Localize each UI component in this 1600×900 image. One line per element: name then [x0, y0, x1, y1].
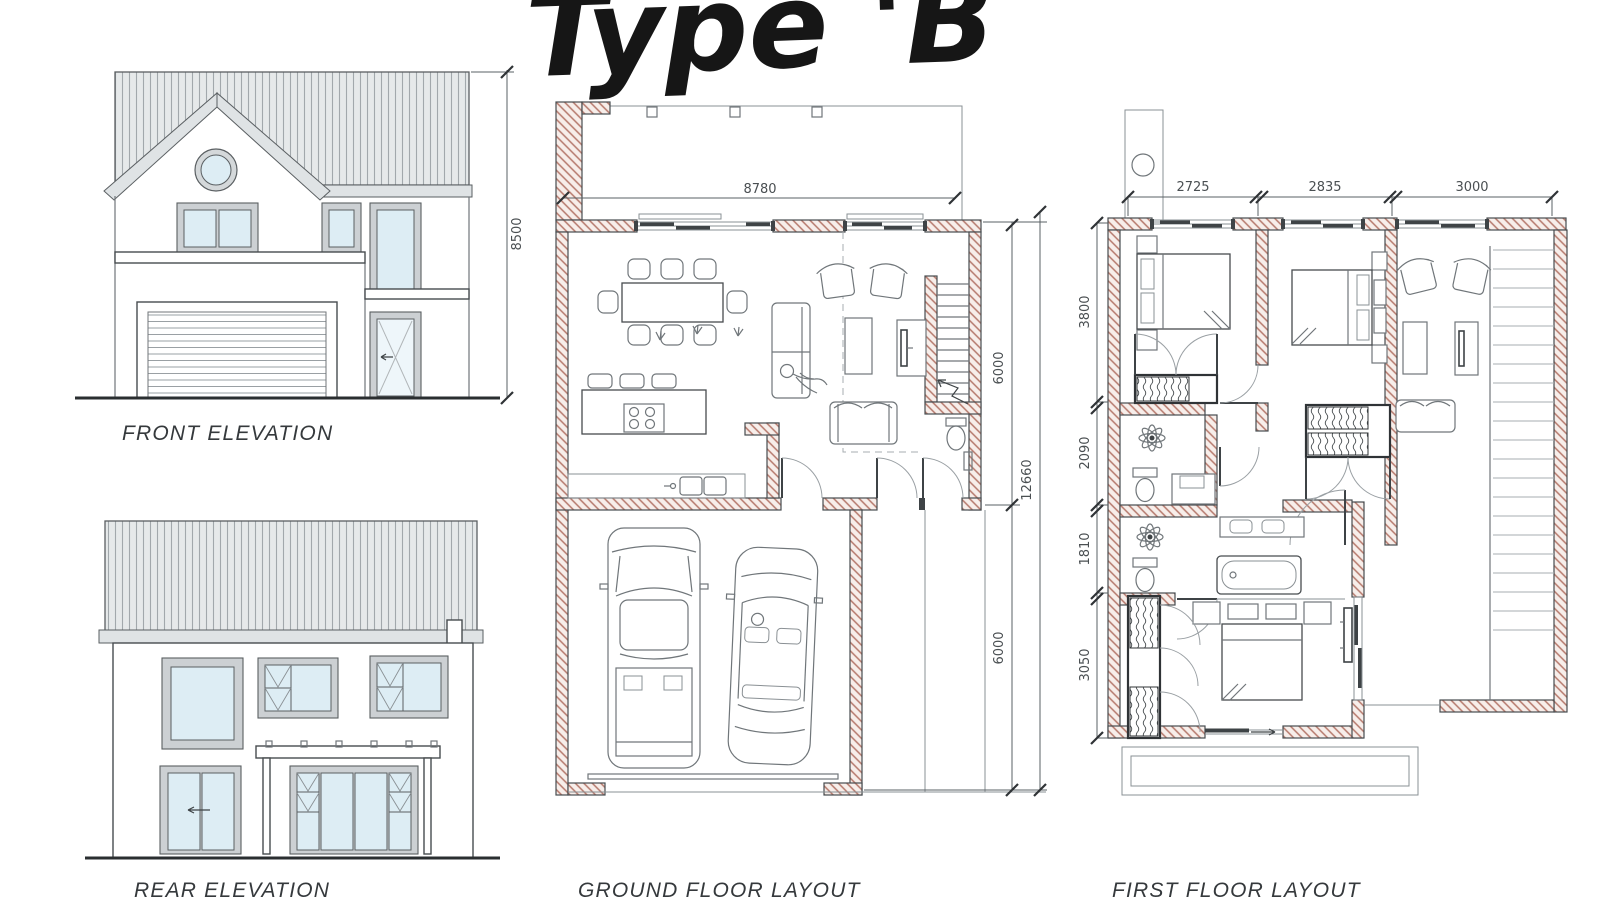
coffee-table	[845, 318, 872, 374]
dim-6000-lower: 6000	[992, 631, 1007, 664]
master-vanity	[1220, 517, 1304, 537]
dim-1810: 1810	[1078, 532, 1093, 565]
window-symbol	[1281, 219, 1365, 229]
nightstand	[1304, 602, 1331, 624]
stairs-first-floor	[1490, 246, 1554, 700]
terrace	[556, 102, 962, 220]
rear-window-large	[162, 658, 243, 749]
window-symbol	[1150, 219, 1235, 229]
front-height-dimension: 8500	[471, 66, 525, 404]
first-floor-caption: FIRST FLOOR LAYOUT	[1112, 879, 1362, 900]
architectural-sheet: Type 'B	[0, 0, 1600, 900]
entry-canopy	[365, 289, 469, 299]
terrace-column	[812, 107, 822, 117]
tv-unit	[1455, 322, 1478, 375]
bedroom-1	[1135, 236, 1258, 403]
entry-door	[370, 312, 421, 398]
front-window-gable	[177, 203, 258, 254]
nightstand	[1372, 252, 1387, 270]
toilet-bowl	[947, 426, 965, 450]
sink	[704, 477, 726, 495]
front-window-mid	[322, 203, 361, 254]
car-pickup	[600, 528, 708, 768]
window-symbol	[634, 214, 775, 231]
interior-door	[1220, 447, 1259, 486]
balcony-band	[115, 252, 365, 263]
front-window-tall	[370, 203, 421, 297]
garage-door-line	[588, 774, 838, 779]
bed	[1137, 254, 1230, 329]
rear-fascia	[99, 630, 483, 643]
flue-shaft	[1125, 110, 1163, 222]
armchair	[1448, 255, 1492, 295]
dim-3050: 3050	[1078, 648, 1093, 681]
stairs	[937, 284, 969, 404]
master-wardrobe	[1128, 596, 1200, 738]
bar-stool	[620, 374, 644, 388]
width-dimension: 8780	[557, 182, 961, 204]
lower-roof-outline	[1122, 747, 1418, 795]
sofa	[830, 402, 897, 444]
interior-door	[877, 458, 917, 498]
first-floor-left-dimensions: 3800 2090 1810 3050	[1078, 217, 1108, 744]
first-floor-top-dimensions: 2725 2835 3000	[1122, 180, 1558, 216]
front-fascia	[324, 185, 472, 197]
front-elevation-drawing: 8500 FRONT ELEVATION	[75, 66, 525, 445]
dim-2090: 2090	[1078, 436, 1093, 469]
rear-elevation-drawing: REAR ELEVATION	[85, 521, 500, 900]
rear-door	[160, 766, 241, 854]
faucet	[671, 484, 676, 489]
coffee-table	[1403, 322, 1427, 374]
front-elevation-caption: FRONT ELEVATION	[122, 422, 333, 445]
extractor-fan-icon	[1137, 524, 1163, 550]
dim-6000-upper: 6000	[992, 351, 1007, 384]
dim-2725: 2725	[1176, 180, 1209, 195]
wall-tv	[1340, 608, 1352, 662]
window-symbol	[1395, 219, 1489, 229]
patio-doors	[290, 766, 418, 854]
rear-roof	[105, 521, 477, 633]
dim-8500: 8500	[510, 217, 525, 250]
nightstand	[1193, 602, 1220, 624]
round-window-glass	[201, 155, 231, 185]
chaise-sofa	[772, 303, 810, 398]
bar-stool	[588, 374, 612, 388]
armchair	[1395, 255, 1440, 296]
nightstand	[1372, 345, 1387, 363]
interior-door	[1220, 365, 1258, 403]
nightstand	[1137, 236, 1157, 253]
master-bed	[1222, 624, 1302, 700]
ground-floor-plan: 8780	[556, 102, 1047, 900]
armchair	[866, 262, 908, 300]
living-area	[772, 232, 926, 452]
bed	[1292, 270, 1372, 345]
terrace-column	[730, 107, 740, 117]
toilet-bowl	[1136, 479, 1154, 502]
pergola-post	[424, 758, 431, 854]
rear-window-2	[258, 658, 338, 718]
garage	[568, 510, 1046, 795]
dim-12660: 12660	[1020, 459, 1035, 500]
flue-circle	[1132, 154, 1154, 176]
first-floor-plan: 2725 2835 3000	[1078, 110, 1567, 900]
tv-unit	[897, 320, 926, 376]
dim-3800: 3800	[1078, 295, 1093, 328]
master-suite	[1128, 490, 1352, 738]
garage-door	[137, 302, 337, 398]
wc	[1133, 524, 1163, 592]
pergola-post	[263, 758, 270, 854]
toilet-bowl	[1136, 569, 1154, 592]
wardrobe	[1306, 405, 1390, 499]
drawing-sheet-svg: Type 'B	[0, 0, 1600, 900]
sheet-title: Type 'B	[524, 0, 998, 104]
bedroom-2	[1292, 252, 1390, 499]
terrace-column	[647, 107, 657, 117]
kitchen-island	[582, 374, 706, 434]
kitchen-counter	[568, 474, 745, 498]
toilet-tank	[1133, 468, 1157, 477]
dim-2835: 2835	[1308, 180, 1341, 195]
window-symbol	[1354, 597, 1362, 700]
dining-table	[598, 259, 747, 345]
bathroom	[1133, 425, 1259, 504]
armchair	[816, 262, 858, 300]
interior-door	[923, 458, 963, 498]
interior-door	[782, 458, 822, 498]
sliding-door	[1205, 729, 1283, 736]
wc-room	[946, 418, 972, 470]
ground-floor-caption: GROUND FLOOR LAYOUT	[578, 879, 862, 900]
rear-window-3	[370, 656, 448, 718]
nightstand	[1137, 330, 1157, 350]
toilet-tank	[1133, 558, 1157, 567]
dim-8780: 8780	[743, 182, 776, 197]
dim-3000: 3000	[1455, 180, 1488, 195]
toilet-tank	[946, 418, 966, 426]
bathtub	[1217, 556, 1301, 594]
extractor-fan-icon	[1139, 425, 1165, 451]
rear-elevation-caption: REAR ELEVATION	[134, 879, 330, 900]
bar-stool	[652, 374, 676, 388]
window-symbol	[843, 214, 927, 231]
sink	[680, 477, 702, 495]
car-sedan	[719, 546, 824, 766]
vanity-table	[1172, 474, 1215, 504]
sofa	[1396, 400, 1455, 432]
